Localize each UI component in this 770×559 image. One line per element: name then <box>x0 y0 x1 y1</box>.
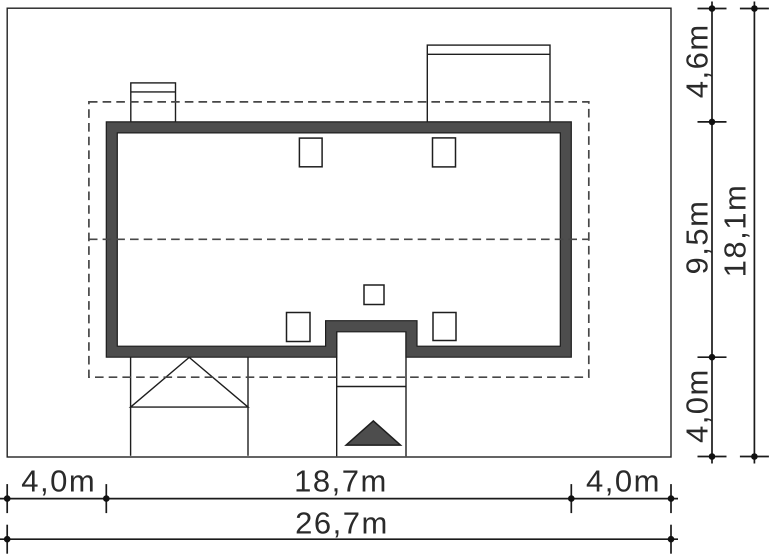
svg-text:4,0m: 4,0m <box>586 463 661 498</box>
svg-text:26,7m: 26,7m <box>295 506 389 541</box>
svg-text:4,0m: 4,0m <box>680 368 715 443</box>
svg-text:4,0m: 4,0m <box>21 463 96 498</box>
svg-text:18,1m: 18,1m <box>718 184 753 278</box>
svg-text:18,7m: 18,7m <box>294 463 388 498</box>
svg-text:4,6m: 4,6m <box>680 23 715 98</box>
svg-text:9,5m: 9,5m <box>680 200 715 275</box>
